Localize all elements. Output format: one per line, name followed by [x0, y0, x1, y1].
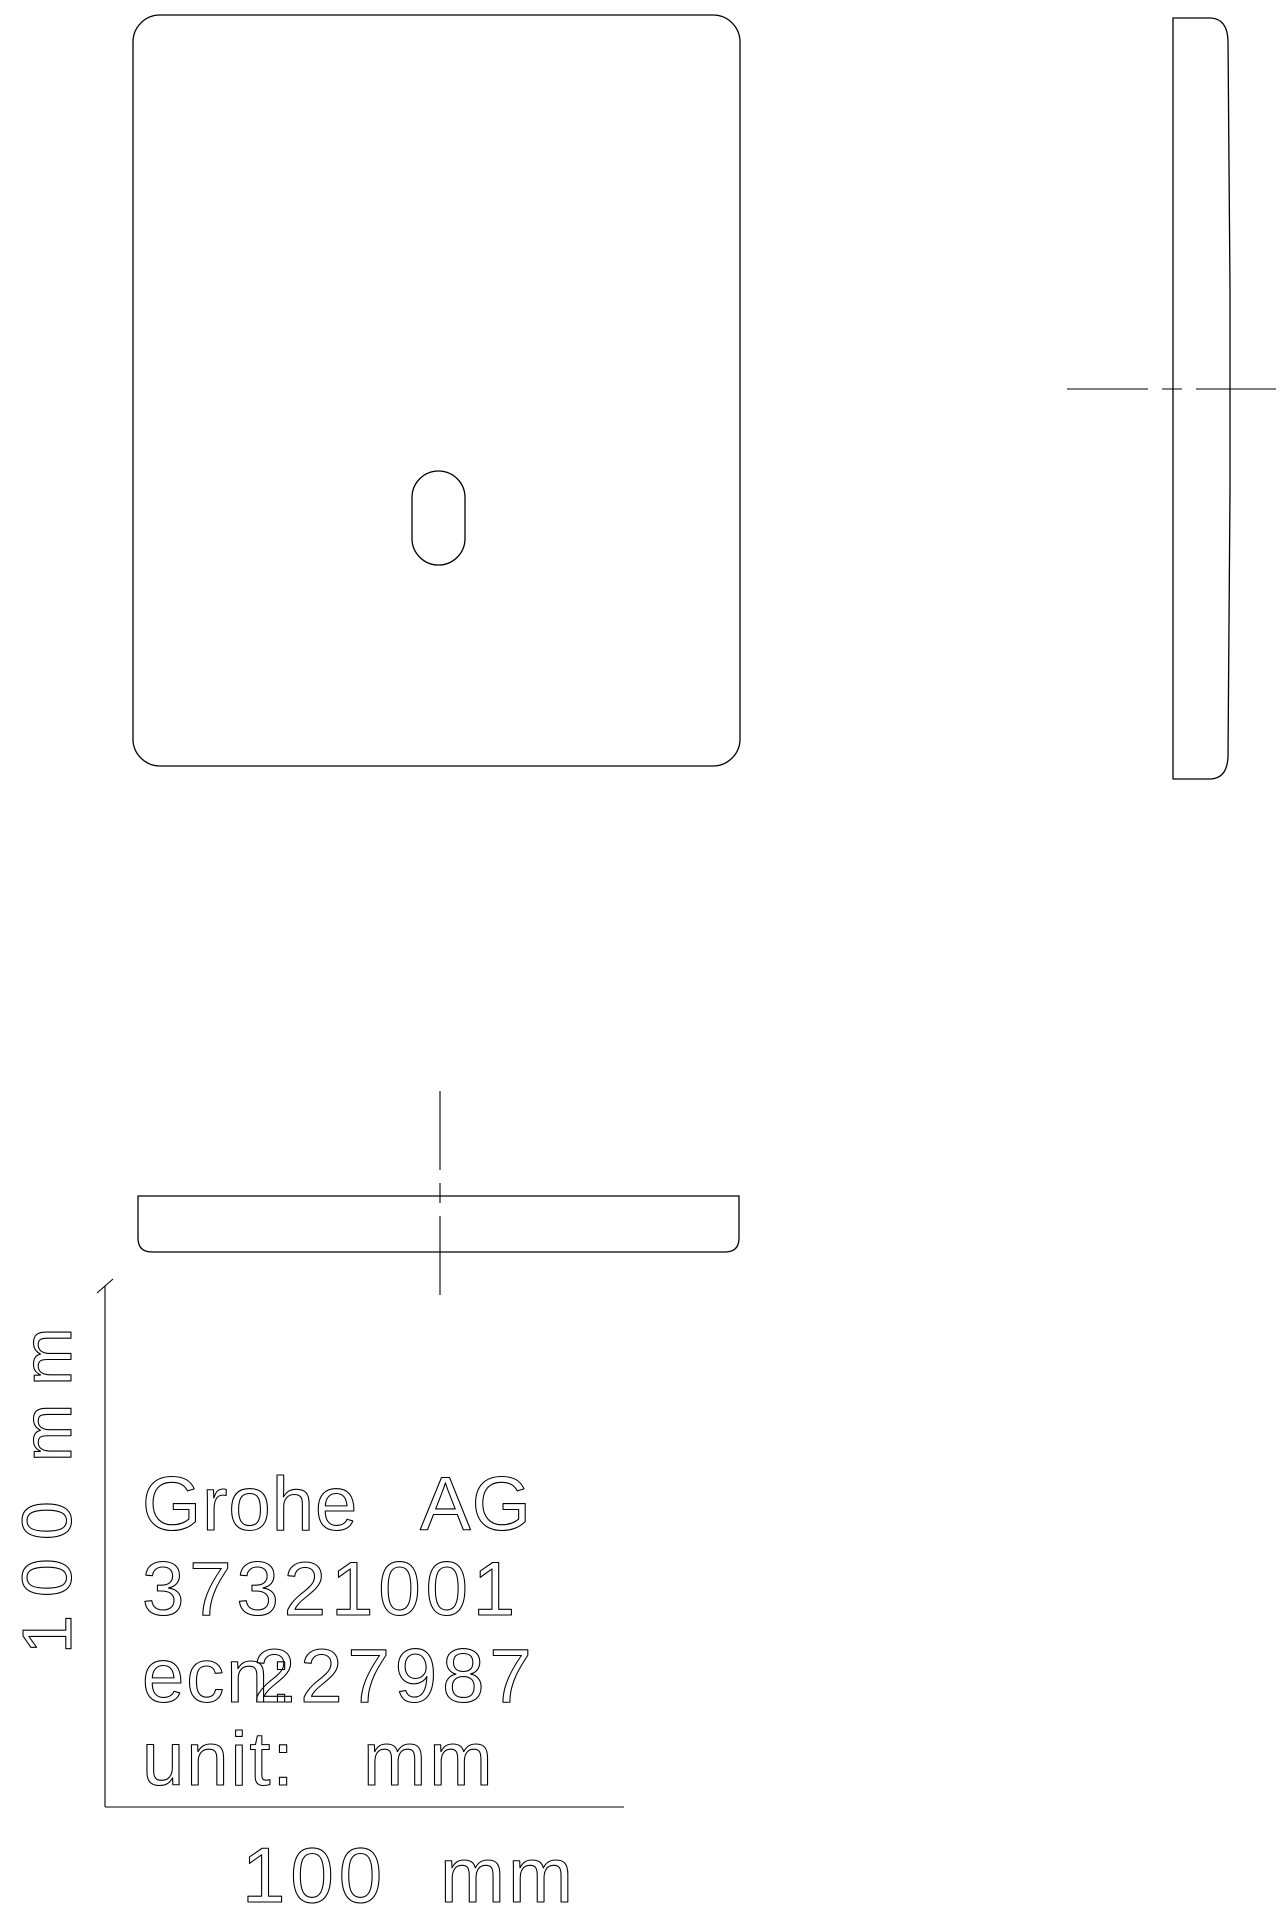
- side-view-outline: [1173, 18, 1230, 779]
- vertical-dim-label-group: 100 mm: [8, 1309, 86, 1654]
- sensor-window-oval: [412, 471, 465, 565]
- horizontal-dim-value-label: 100: [242, 1831, 387, 1919]
- company-label-word1: Grohe: [142, 1462, 358, 1547]
- part-number-label: 37321001: [142, 1547, 520, 1632]
- vertical-dim-value-label: 100: [8, 1483, 86, 1654]
- top-view-outline: [138, 1196, 739, 1252]
- technical-drawing-page: Grohe AG 37321001 ecn: 227987 unit: mm 1…: [0, 0, 1287, 1920]
- unit-value-label: mm: [363, 1717, 496, 1802]
- top-view: [138, 1091, 739, 1301]
- side-view: [1067, 18, 1276, 779]
- ecn-number-label: 227987: [253, 1634, 537, 1719]
- unit-label: unit:: [142, 1717, 296, 1802]
- front-view: [133, 15, 740, 766]
- annotation-block: Grohe AG 37321001 ecn: 227987 unit: mm 1…: [8, 1309, 576, 1919]
- drawing-canvas: Grohe AG 37321001 ecn: 227987 unit: mm 1…: [0, 0, 1287, 1920]
- company-label-word2: AG: [420, 1462, 532, 1547]
- horizontal-dim-unit-label: mm: [440, 1831, 576, 1919]
- front-view-outline: [133, 15, 740, 766]
- vertical-dim-unit-label: mm: [8, 1309, 86, 1462]
